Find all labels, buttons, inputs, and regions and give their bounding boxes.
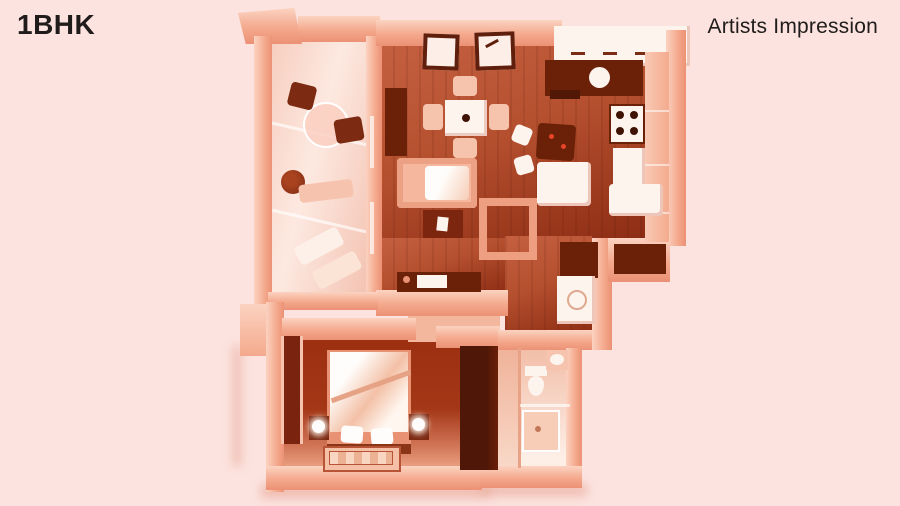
counter-mat bbox=[550, 90, 580, 99]
hob-burner bbox=[630, 111, 638, 119]
kitchen-sink bbox=[589, 67, 610, 88]
bathroom-top-wall bbox=[498, 330, 596, 350]
rug-accent bbox=[561, 144, 566, 149]
table-centerpiece bbox=[462, 114, 470, 122]
bathroom-right-wall bbox=[566, 348, 582, 480]
unit-seam bbox=[645, 164, 669, 166]
bed-duvet bbox=[330, 352, 408, 432]
unit-seam bbox=[645, 110, 669, 112]
dining-chair bbox=[423, 104, 443, 130]
plan-shadow bbox=[233, 346, 241, 466]
cabinet-handle bbox=[571, 52, 585, 55]
hob-burner bbox=[630, 127, 638, 135]
dining-chair bbox=[489, 104, 509, 130]
balcony-door-glass bbox=[370, 202, 374, 254]
wardrobe bbox=[460, 346, 498, 470]
dining-chair bbox=[453, 138, 477, 158]
floorplan-render bbox=[237, 6, 687, 500]
wall-frame bbox=[474, 31, 515, 70]
bedroom-rug bbox=[323, 446, 401, 472]
bedroom-top-wall-right bbox=[436, 326, 500, 348]
bookshelf bbox=[385, 88, 407, 156]
pillow bbox=[340, 425, 363, 443]
hob-burner bbox=[616, 127, 624, 135]
bedroom-window bbox=[281, 336, 303, 444]
balcony-living-partition bbox=[366, 36, 382, 304]
tv-unit-decor bbox=[403, 276, 410, 283]
white-cabinet bbox=[609, 184, 663, 216]
sofa-cushions bbox=[425, 166, 469, 200]
page-title: 1BHK bbox=[17, 9, 95, 41]
bathroom-glass-partition bbox=[518, 348, 521, 468]
balcony-chair-dark bbox=[333, 116, 365, 144]
shower-glass bbox=[520, 404, 570, 407]
kitchen-rug bbox=[536, 123, 576, 162]
toilet bbox=[525, 366, 547, 376]
cabinet-handle bbox=[603, 52, 617, 55]
utility-doorway bbox=[560, 242, 598, 278]
hob-burner bbox=[616, 111, 624, 119]
tv-screen bbox=[417, 275, 447, 288]
wall-frame bbox=[422, 33, 459, 70]
balcony-bottom-wall bbox=[268, 292, 378, 310]
side-table bbox=[479, 198, 537, 260]
bedside-lamp bbox=[412, 418, 425, 431]
rug-inner-border bbox=[329, 451, 393, 465]
living-bottom-wall bbox=[376, 290, 508, 316]
washing-machine-door bbox=[567, 290, 587, 310]
double-bed bbox=[327, 350, 411, 454]
washbasin bbox=[550, 354, 564, 365]
artists-impression-label: Artists Impression bbox=[708, 15, 878, 39]
balcony-door-glass bbox=[370, 116, 374, 168]
shower-drain bbox=[535, 426, 541, 432]
storage-niche bbox=[614, 244, 666, 274]
book-on-table bbox=[436, 216, 448, 231]
balcony-left-wall bbox=[254, 36, 272, 308]
four-burner-hob bbox=[611, 106, 643, 142]
living-top-wall bbox=[376, 20, 562, 46]
island-counter bbox=[537, 162, 591, 206]
rug-accent bbox=[549, 134, 554, 139]
kitchen-right-wall bbox=[666, 30, 686, 246]
bedside-lamp bbox=[312, 420, 325, 433]
dining-chair bbox=[453, 76, 477, 96]
shower-area bbox=[522, 410, 560, 452]
